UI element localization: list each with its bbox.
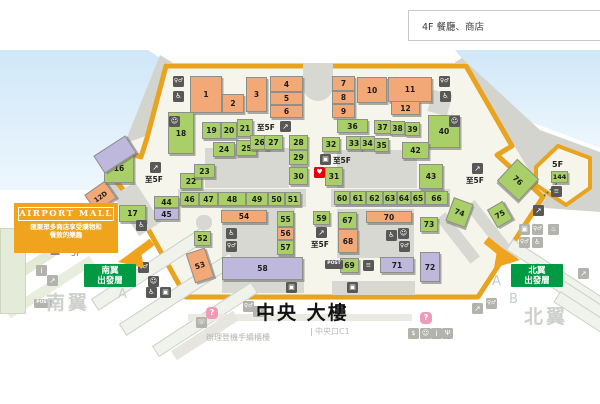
baby-icon: ☺	[398, 228, 409, 239]
terminal-floor-map: 4F 餐廳、商店 AIRPORT MALL 匯聚眾多商店享受購物和 餐飲的樂趣 …	[0, 0, 600, 404]
shop-73[interactable]: 73	[420, 217, 438, 232]
to-5f-label: 至5F	[311, 241, 329, 249]
north-wing-departures-sign[interactable]: 北翼 出發層	[511, 264, 563, 287]
post-icon: POST	[325, 260, 343, 269]
map-label: 中央 大樓	[256, 304, 349, 323]
baby-icon: ☺	[449, 116, 460, 127]
toilet-icon: ♀♂	[138, 262, 149, 273]
shop-6[interactable]: 6	[270, 105, 303, 118]
access-icon: ♿	[386, 230, 397, 241]
to-5f-label: 至5F	[257, 124, 275, 132]
airport-mall-title: AIRPORT MALL	[18, 207, 114, 221]
shop-42[interactable]: 42	[402, 142, 429, 159]
shop-72[interactable]: 72	[420, 252, 440, 282]
shop-28[interactable]: 28	[289, 135, 308, 150]
baby-icon: ☺	[148, 276, 159, 287]
shop-29[interactable]: 29	[289, 150, 308, 165]
shop-37[interactable]: 37	[374, 120, 391, 134]
elevator-icon: ▣	[347, 282, 358, 293]
question-icon: ?	[206, 307, 218, 319]
shop-9[interactable]: 9	[332, 104, 355, 118]
toilet-icon: ♀♂	[226, 241, 237, 252]
toilet-icon: ♀♂	[486, 298, 497, 309]
shop-65[interactable]: 65	[411, 191, 425, 205]
shop-58[interactable]: 58	[222, 257, 303, 280]
map-label: 中央口C1	[311, 328, 350, 336]
shop-36[interactable]: 36	[337, 119, 368, 133]
info-icon: i	[36, 265, 47, 276]
map-label: 北翼	[524, 308, 568, 327]
shop-19[interactable]: 19	[202, 122, 221, 139]
to-5f-label: 至5F	[145, 176, 163, 184]
shop-46[interactable]: 46	[180, 192, 199, 206]
shop-3[interactable]: 3	[246, 77, 267, 112]
map-label: B	[509, 293, 518, 306]
north-sign-line2: 出發層	[511, 276, 563, 286]
shop-20[interactable]: 20	[221, 122, 237, 139]
shop-43[interactable]: 43	[419, 164, 443, 189]
shop-44[interactable]: 44	[154, 196, 179, 208]
access-icon: ♿	[226, 228, 237, 239]
shop-23[interactable]: 23	[194, 164, 215, 178]
shop-45[interactable]: 45	[154, 208, 179, 220]
info-icon: i	[431, 328, 442, 339]
map-label: A	[492, 275, 501, 288]
map-label: 南翼	[46, 294, 90, 313]
airport-mall-desc-1: 匯聚眾多商店享受購物和	[14, 223, 118, 231]
shop-7[interactable]: 7	[332, 76, 355, 91]
access-icon: ♿	[136, 220, 147, 231]
elevator-icon: ▣	[519, 224, 530, 235]
map-label: 辦理登機手續櫃檯	[206, 334, 270, 342]
escalator-icon: ↗	[533, 205, 544, 216]
south-sign-line2: 出發層	[84, 276, 136, 286]
escalator-icon: ↗	[280, 121, 291, 132]
shop-24[interactable]: 24	[213, 142, 235, 157]
shop-49[interactable]: 49	[246, 192, 268, 206]
shop-47[interactable]: 47	[199, 192, 218, 206]
shop-31[interactable]: 31	[325, 167, 343, 186]
shop-68[interactable]: 68	[338, 229, 358, 253]
to-5f-label: 至5F	[466, 177, 484, 185]
shop-4[interactable]: 4	[270, 76, 303, 92]
map-label: 5F	[552, 161, 563, 169]
escalator-icon: ↗	[578, 268, 589, 279]
building-shape	[303, 63, 333, 101]
smoking-icon: ♨	[548, 224, 559, 235]
shop-39[interactable]: 39	[405, 122, 420, 136]
shop-55[interactable]: 55	[277, 211, 294, 227]
shop-57[interactable]: 57	[277, 240, 294, 255]
shop-61[interactable]: 61	[350, 191, 366, 205]
toilet-icon: ♀♂	[532, 224, 543, 235]
toilet-icon: ♀♂	[439, 76, 450, 87]
shop-35[interactable]: 35	[374, 138, 389, 152]
shop-63[interactable]: 63	[383, 191, 397, 205]
elevator-icon: ▣	[160, 287, 171, 298]
shop-32[interactable]: 32	[322, 137, 340, 152]
toilet-icon: ♀♂	[399, 241, 410, 252]
elevator-icon: ▣	[286, 282, 297, 293]
stairs-icon: ≡	[551, 186, 562, 197]
shop-30[interactable]: 30	[289, 167, 308, 185]
elevator-icon: ▣	[320, 154, 331, 165]
to-5f-label: 至5F	[333, 157, 351, 165]
exchange-icon: $	[408, 328, 419, 339]
floor-title: 4F 餐廳、商店	[422, 19, 484, 33]
restaurant-icon: Ψ	[442, 328, 453, 339]
escalator-icon: ↗	[472, 303, 483, 314]
toilet-icon: ♀♂	[519, 237, 530, 248]
shop-8[interactable]: 8	[332, 91, 355, 104]
escalator-icon: ↗	[316, 227, 327, 238]
phone-icon: ☏	[196, 317, 207, 328]
shop-56[interactable]: 56	[277, 227, 294, 240]
shop-10[interactable]: 10	[357, 77, 387, 103]
aed-icon: ♥	[314, 167, 325, 178]
airport-mall-desc-2: 餐飲的樂趣	[14, 231, 118, 239]
shop-5[interactable]: 5	[270, 92, 303, 105]
shop-52[interactable]: 52	[194, 231, 211, 246]
shop-60[interactable]: 60	[334, 191, 350, 205]
shop-27[interactable]: 27	[264, 135, 283, 150]
access-icon: ♿	[173, 91, 184, 102]
south-wing-departures-sign[interactable]: 南翼 出發層	[84, 264, 136, 287]
floor-title-box: 4F 餐廳、商店	[408, 10, 600, 41]
baby-icon: ☺	[420, 328, 431, 339]
shop-38[interactable]: 38	[390, 121, 405, 135]
airport-mall-banner: AIRPORT MALL 匯聚眾多商店享受購物和 餐飲的樂趣	[14, 203, 118, 253]
shop-12[interactable]: 12	[391, 101, 420, 115]
south-sign-line1: 南翼	[84, 266, 136, 276]
shop-48[interactable]: 48	[218, 192, 246, 206]
shop-144[interactable]: 144	[551, 171, 568, 183]
shop-34[interactable]: 34	[360, 136, 375, 150]
shop-67[interactable]: 67	[338, 212, 357, 229]
shop-54[interactable]: 54	[221, 210, 267, 223]
shop-66[interactable]: 66	[425, 191, 448, 205]
shop-71[interactable]: 71	[380, 257, 414, 273]
shop-50[interactable]: 50	[268, 192, 285, 206]
escalator-icon: ↗	[472, 163, 483, 174]
escalator-icon: ↗	[47, 275, 58, 286]
shop-62[interactable]: 62	[366, 191, 383, 205]
shop-2[interactable]: 2	[222, 94, 244, 113]
access-icon: ♿	[532, 237, 543, 248]
shop-64[interactable]: 64	[397, 191, 411, 205]
shop-70[interactable]: 70	[366, 211, 412, 223]
shop-11[interactable]: 11	[388, 77, 432, 102]
question-icon: ?	[420, 312, 432, 324]
access-icon: ♿	[440, 91, 451, 102]
north-sign-line1: 北翼	[511, 266, 563, 276]
shop-59[interactable]: 59	[313, 211, 330, 225]
access-icon: ♿	[146, 287, 157, 298]
map-label: A	[118, 288, 127, 301]
shop-51[interactable]: 51	[285, 192, 301, 206]
escalator-icon: ↗	[150, 162, 161, 173]
toilet-icon: ♀♂	[173, 76, 184, 87]
baby-icon: ☺	[169, 116, 180, 127]
shop-1[interactable]: 1	[190, 76, 222, 113]
stairs-icon: ≡	[363, 260, 374, 271]
building-shape	[332, 281, 415, 295]
